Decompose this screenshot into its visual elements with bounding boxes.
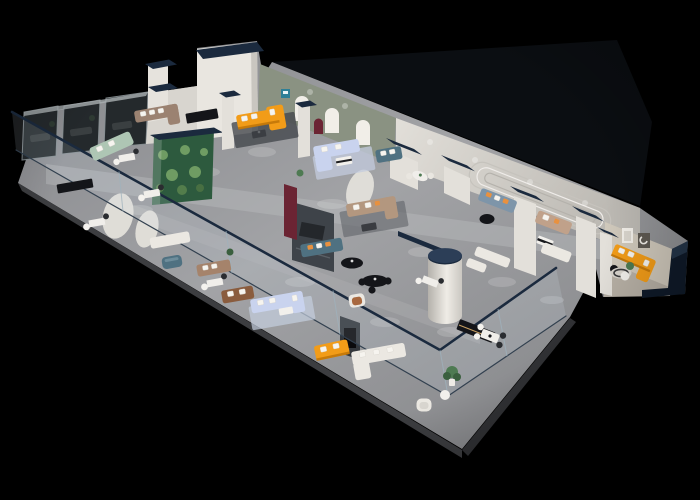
vignette-overlay (0, 0, 700, 500)
showroom-render-stage (0, 0, 700, 500)
showroom-floorplan-render (0, 0, 700, 500)
